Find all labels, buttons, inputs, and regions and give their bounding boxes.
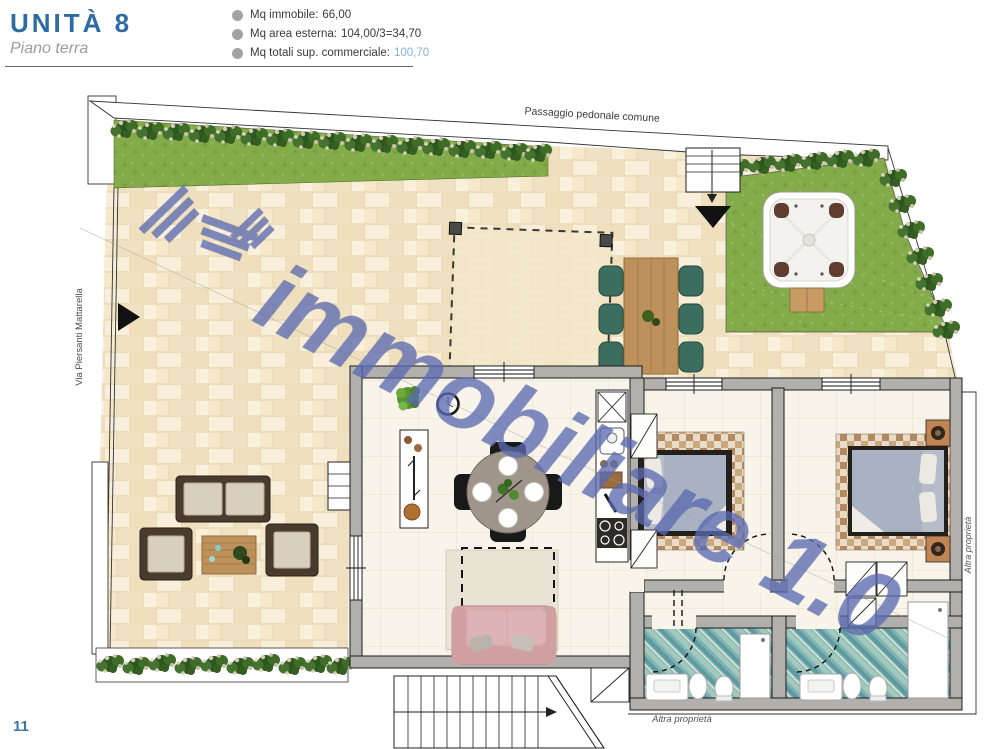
spec-area-esterna: Mq area esterna:104,00/3=34,70 [232,27,421,41]
bullet-icon [232,29,243,40]
sofa [452,606,556,664]
bidet2 [843,673,861,699]
shower1 [740,634,770,698]
spec-value-highlight: 100,70 [394,47,429,59]
spec-text: Mq area esterna:104,00/3=34,70 [250,28,421,40]
street-label: Via Piersanti Mattarella [74,288,85,386]
brochure-page: UNITÀ 8 Piano terra Mq immobile:66,00 Mq… [0,0,988,749]
other-property-bottom-label: Altra proprietà [651,714,712,725]
floor-plan: immobiliare 1.0 Passaggio pedonale comun… [0,0,988,749]
shower2 [908,602,948,698]
spec-text: Mq immobile:66,00 [250,9,351,21]
console-coat-rack [400,430,428,528]
exterior-closet [591,668,629,702]
garden [723,148,961,339]
spec-text: Mq totali sup. commerciale:100,70 [250,47,429,59]
spec-value: 104,00/3=34,70 [341,28,421,40]
spec-label: Mq immobile: [250,9,318,21]
page-number: 11 [13,718,29,735]
outdoor-dining-set [599,258,703,374]
header: UNITÀ 8 Piano terra Mq immobile:66,00 Mq… [0,0,988,80]
walkway-label: Passaggio pedonale comune [524,105,660,125]
coffee-table [202,536,256,574]
spec-label: Mq totali sup. commerciale: [250,47,390,59]
hedge-bottom [96,648,354,682]
bidet1 [689,673,707,699]
spec-immobile: Mq immobile:66,00 [232,8,351,22]
bullet-icon [232,10,243,21]
bullet-icon [232,48,243,59]
common-stairs [394,676,604,748]
page-subtitle: Piano terra [10,40,88,58]
other-property-right-label: Altra proprietà [963,517,973,575]
header-rule [5,66,413,67]
bedroom2-bed [848,446,948,536]
spec-label: Mq area esterna: [250,28,337,40]
page-title: UNITÀ 8 [10,8,132,39]
spec-commerciale: Mq totali sup. commerciale:100,70 [232,46,429,60]
spec-value: 66,00 [322,9,351,21]
